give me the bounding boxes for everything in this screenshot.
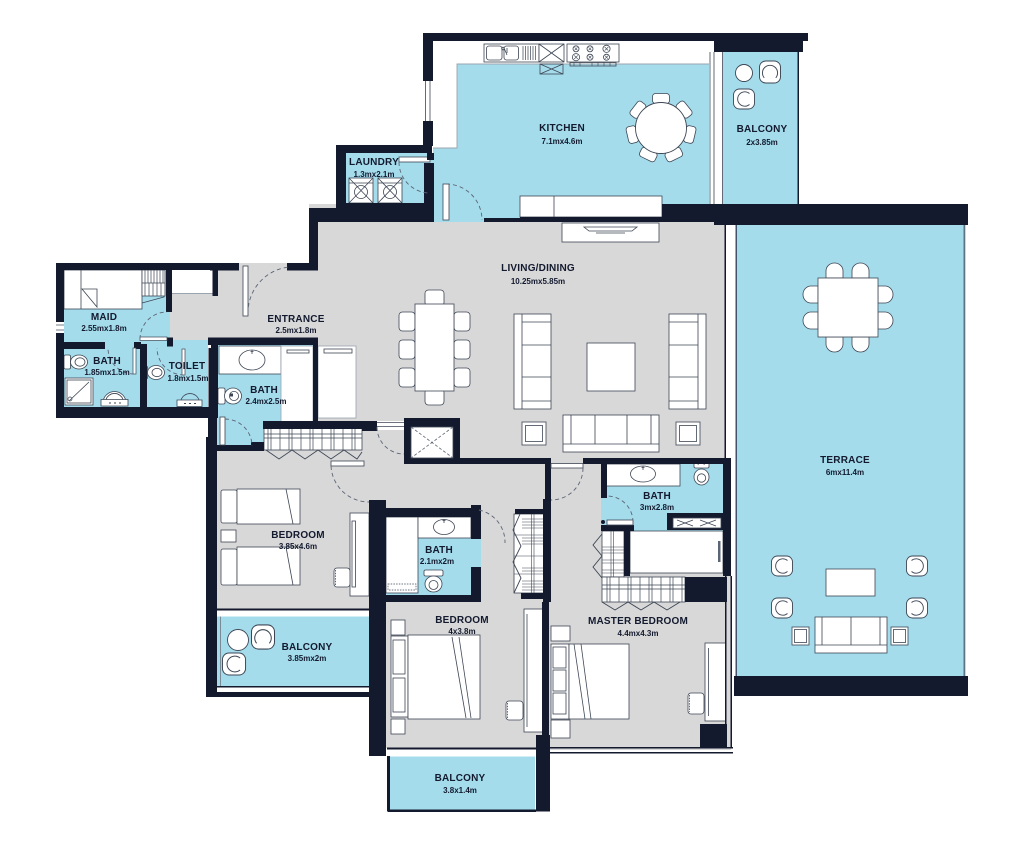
svg-text:ENTRANCE: ENTRANCE bbox=[267, 314, 324, 325]
svg-text:LIVING/DINING: LIVING/DINING bbox=[501, 263, 575, 274]
svg-text:3mx2.8m: 3mx2.8m bbox=[640, 503, 674, 512]
svg-text:BATH: BATH bbox=[93, 356, 121, 367]
svg-text:2.5mx1.8m: 2.5mx1.8m bbox=[276, 326, 317, 335]
svg-text:BEDROOM: BEDROOM bbox=[271, 530, 325, 541]
svg-text:2.4mx2.5m: 2.4mx2.5m bbox=[246, 397, 287, 406]
svg-text:MASTER BEDROOM: MASTER BEDROOM bbox=[588, 616, 688, 627]
svg-text:BATH: BATH bbox=[643, 491, 671, 502]
svg-text:3.85x4.6m: 3.85x4.6m bbox=[279, 542, 317, 551]
svg-text:LAUNDRY: LAUNDRY bbox=[349, 157, 399, 168]
svg-text:BALCONY: BALCONY bbox=[282, 642, 333, 653]
svg-text:TOILET: TOILET bbox=[169, 361, 206, 372]
svg-text:BEDROOM: BEDROOM bbox=[435, 615, 489, 626]
svg-text:2x3.85m: 2x3.85m bbox=[746, 138, 778, 147]
svg-text:4x3.8m: 4x3.8m bbox=[448, 627, 475, 636]
svg-text:1.85mx1.5m: 1.85mx1.5m bbox=[84, 368, 129, 377]
svg-text:MAID: MAID bbox=[91, 312, 117, 323]
svg-text:3.8x1.4m: 3.8x1.4m bbox=[443, 786, 477, 795]
svg-text:BALCONY: BALCONY bbox=[737, 124, 788, 135]
svg-text:2.1mx2m: 2.1mx2m bbox=[420, 557, 454, 566]
svg-text:1.3mx2.1m: 1.3mx2.1m bbox=[354, 170, 395, 179]
svg-text:4.4mx4.3m: 4.4mx4.3m bbox=[618, 629, 659, 638]
svg-text:1.8mx1.5m: 1.8mx1.5m bbox=[168, 374, 209, 383]
svg-text:10.25mx5.85m: 10.25mx5.85m bbox=[511, 277, 565, 286]
svg-text:6mx11.4m: 6mx11.4m bbox=[826, 468, 864, 477]
svg-text:KITCHEN: KITCHEN bbox=[539, 123, 585, 134]
svg-text:2.55mx1.8m: 2.55mx1.8m bbox=[81, 324, 126, 333]
svg-text:BATH: BATH bbox=[250, 385, 278, 396]
svg-text:3.85mx2m: 3.85mx2m bbox=[288, 654, 327, 663]
svg-text:TERRACE: TERRACE bbox=[820, 455, 870, 466]
svg-text:BATH: BATH bbox=[425, 545, 453, 556]
svg-text:BALCONY: BALCONY bbox=[435, 773, 486, 784]
svg-text:7.1mx4.6m: 7.1mx4.6m bbox=[542, 137, 583, 146]
